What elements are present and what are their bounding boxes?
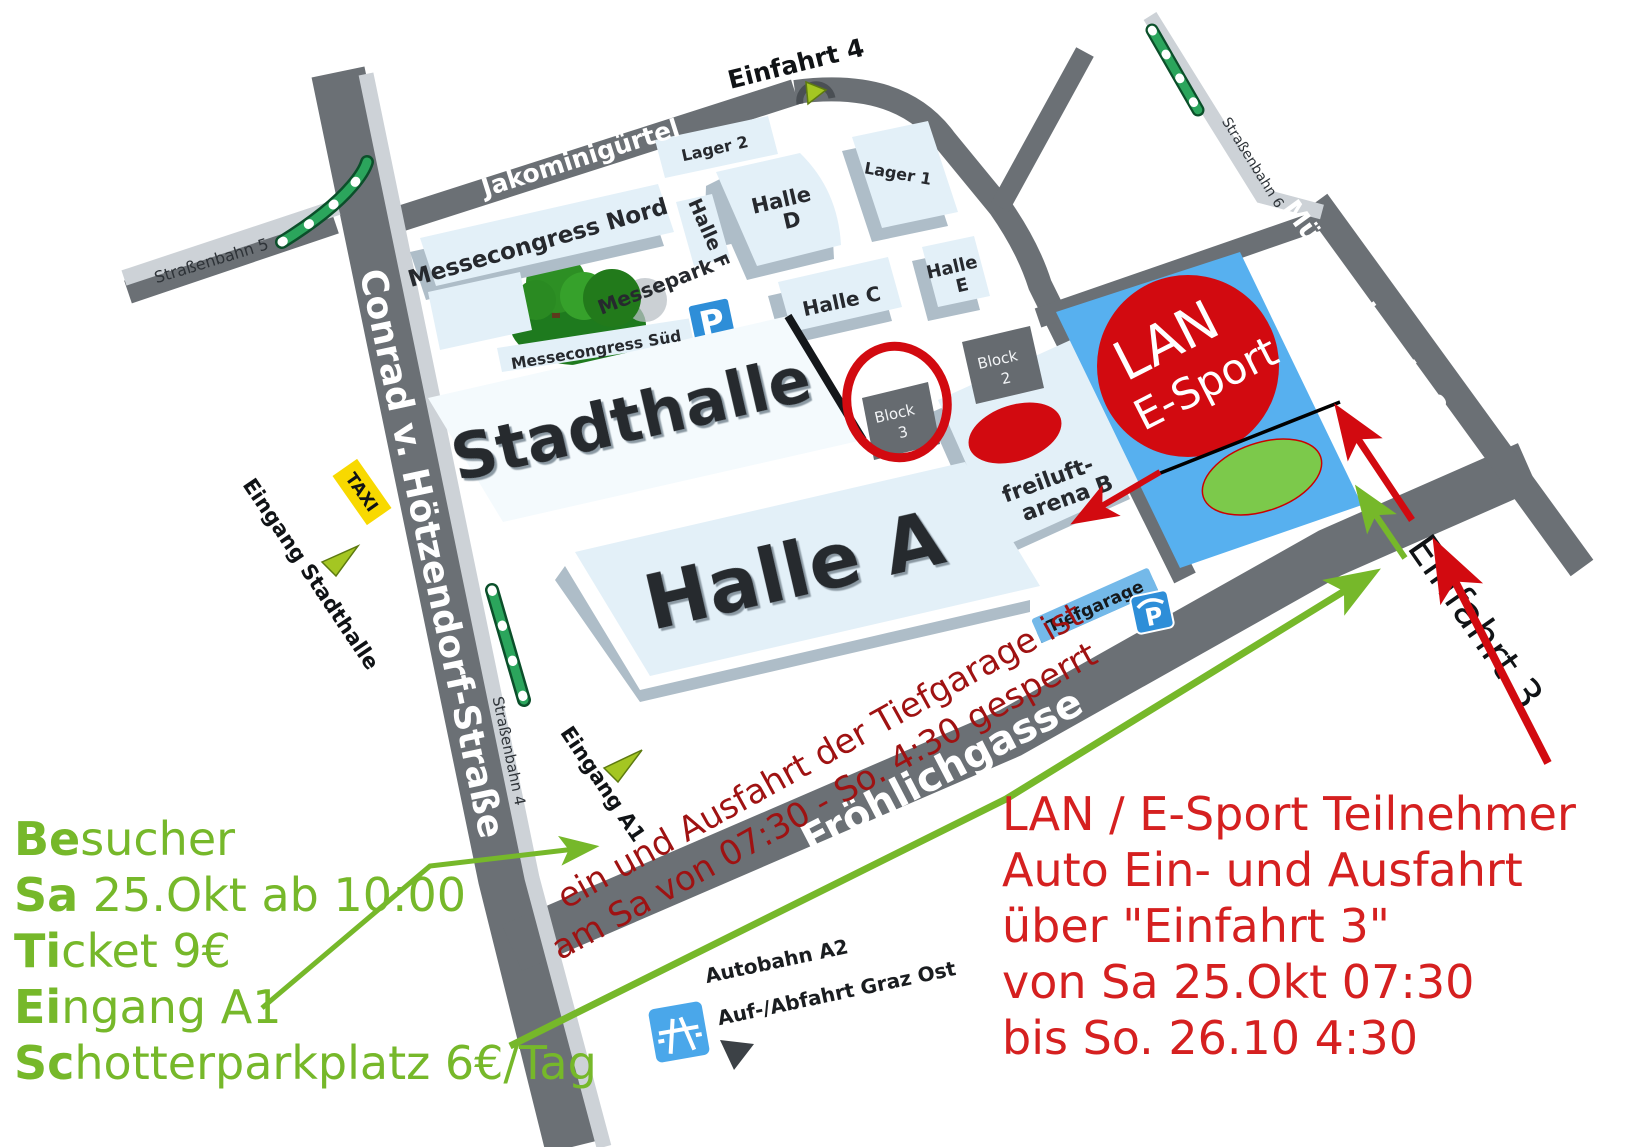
taxi-sign: TAXI	[333, 459, 392, 525]
autobahn-icon	[648, 1001, 711, 1064]
einfahrt3-red-arrow	[1438, 548, 1548, 763]
visitor-line2: Sa 25.Okt ab 10:00	[14, 868, 466, 922]
visitor-line1: Besucher	[14, 812, 235, 866]
lan-teilnehmer-legend: LAN / E-Sport Teilnehmer Auto Ein- und A…	[1002, 787, 1576, 1065]
tram-band-line6	[1150, 16, 1322, 212]
road-north-stub	[1000, 52, 1085, 207]
lan-line1: LAN / E-Sport Teilnehmer	[1002, 787, 1576, 841]
label-eingang-a1: Eingang A1	[555, 722, 650, 846]
autobahn-direction-triangle	[720, 1040, 754, 1070]
label-strassenbahn6: Straßenbahn 6	[1218, 115, 1287, 211]
map-canvas: P Tiefgarage P LAN E-Sport	[0, 0, 1652, 1147]
lan-line2: Auto Ein- und Ausfahrt	[1002, 843, 1523, 897]
lan-line4: von Sa 25.Okt 07:30	[1002, 955, 1474, 1009]
visitor-line4: Eingang A1	[14, 980, 281, 1034]
tiefgarage-parking-icon: P	[1129, 589, 1174, 634]
label-conrad-strasse: Conrad v. Hötzendorf-Straße	[351, 265, 512, 842]
lan-line5: bis So. 26.10 4:30	[1002, 1011, 1418, 1065]
visitor-line3: Ticket 9€	[14, 924, 231, 978]
lan-line3: über "Einfahrt 3"	[1002, 899, 1390, 953]
site-map: P Tiefgarage P LAN E-Sport	[0, 0, 1652, 1147]
visitor-line5: Schotterparkplatz 6€/Tag	[14, 1036, 597, 1090]
eingang-stadthalle-marker	[322, 546, 358, 576]
